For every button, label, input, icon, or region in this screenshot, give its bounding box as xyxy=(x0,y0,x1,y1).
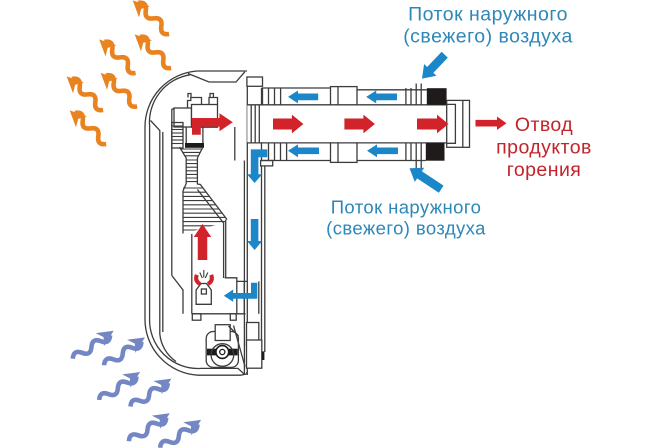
svg-text:Поток наружного: Поток наружного xyxy=(408,4,568,26)
svg-text:продуктов: продуктов xyxy=(496,137,592,159)
svg-text:горения: горения xyxy=(507,159,582,181)
svg-text:(свежего) воздуха: (свежего) воздуха xyxy=(326,218,486,239)
svg-text:Отвод: Отвод xyxy=(515,114,573,136)
svg-text:(свежего) воздуха: (свежего) воздуха xyxy=(403,26,573,48)
svg-text:Поток наружного: Поток наружного xyxy=(331,197,482,218)
